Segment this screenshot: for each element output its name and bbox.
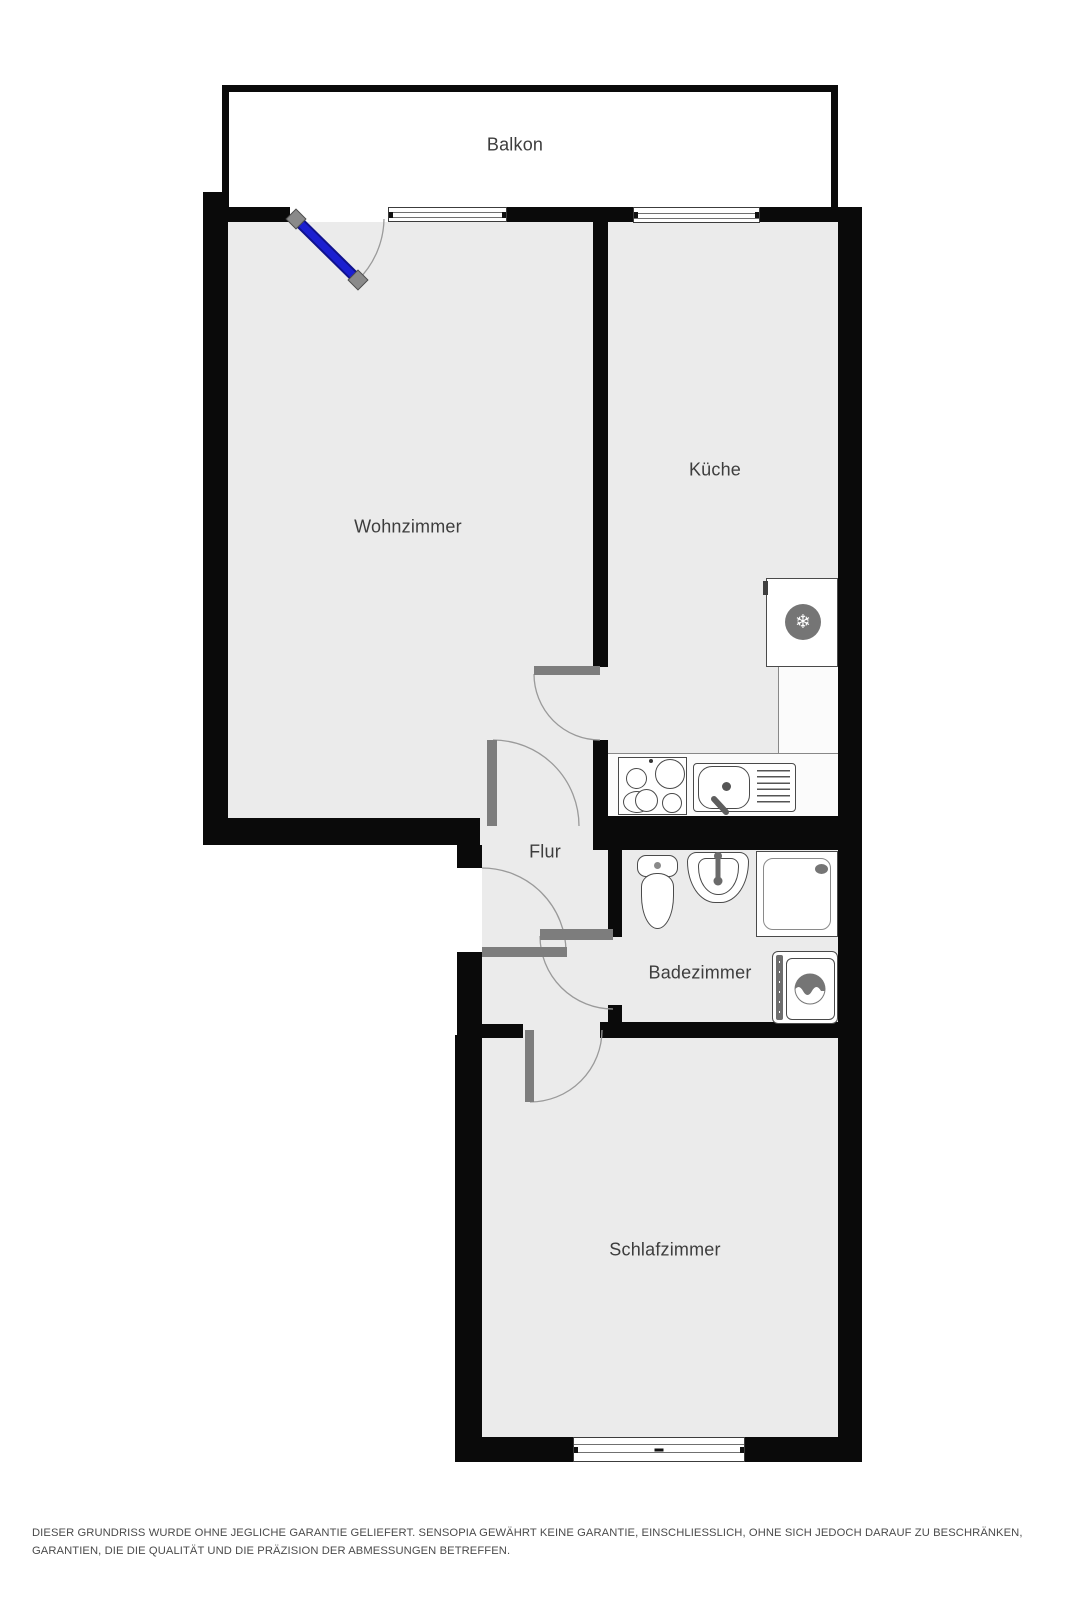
- stove-burner-bl: [635, 789, 658, 812]
- room-label-badezimmer: Badezimmer: [648, 963, 751, 984]
- wall-schlafzimmer-top-left: [482, 1024, 523, 1038]
- wall-balcony-right: [831, 85, 838, 207]
- window-kueche: [633, 207, 760, 223]
- stove-burner-br: [662, 793, 682, 813]
- toilet-button: [654, 862, 661, 869]
- wall-kueche-bottom: [593, 816, 862, 850]
- room-floor-schlafzimmer: [482, 1038, 838, 1437]
- wall-balcony-left: [222, 85, 229, 207]
- opening-schlafzimmer-door: [523, 1022, 600, 1038]
- wall-top-a: [228, 207, 290, 222]
- washing-machine-door-edge: [776, 955, 783, 1020]
- washing-machine-body: [786, 958, 835, 1020]
- wall-schlafzimmer-left: [455, 1035, 482, 1462]
- wall-flur-left-lower: [457, 952, 482, 1035]
- floor-plan: ❄: [0, 0, 1067, 1600]
- wall-schlafzimmer-top-right: [600, 1022, 838, 1038]
- wall-balcony-top: [222, 85, 838, 92]
- room-label-balkon: Balkon: [487, 135, 543, 156]
- room-label-kueche: Küche: [689, 460, 741, 481]
- opening-kitchen-door: [593, 667, 608, 740]
- wall-flur-left-upper: [457, 845, 482, 868]
- window-wohnzimmer: [388, 207, 507, 222]
- room-floor-flur: [482, 845, 608, 1024]
- wall-left: [203, 192, 228, 845]
- kitchen-sink-drain: [722, 782, 731, 791]
- room-label-wohnzimmer: Wohnzimmer: [354, 517, 462, 538]
- window-schlafzimmer: [573, 1437, 745, 1462]
- wall-top-b: [507, 207, 633, 222]
- room-label-schlafzimmer: Schlafzimmer: [609, 1240, 720, 1261]
- stove-burner-tr: [655, 759, 685, 789]
- refrigerator-hinge: [763, 581, 768, 595]
- shower-head: [815, 864, 828, 874]
- wall-divider-lower: [593, 740, 608, 818]
- room-label-flur: Flur: [529, 842, 561, 863]
- wall-wohnzimmer-bottom: [203, 818, 480, 845]
- wall-bad-left: [608, 850, 622, 937]
- wall-divider-upper: [593, 222, 608, 667]
- kitchen-counter-right: [778, 667, 839, 753]
- kitchen-sink-drainboard: [757, 770, 790, 807]
- opening-bad-door: [608, 937, 622, 1005]
- stove-dot: [649, 759, 653, 763]
- disclaimer-text: DIESER GRUNDRISS WURDE OHNE JEGLICHE GAR…: [32, 1524, 1040, 1560]
- snowflake-icon: ❄: [785, 604, 821, 640]
- stove-burner-tl: [626, 768, 647, 789]
